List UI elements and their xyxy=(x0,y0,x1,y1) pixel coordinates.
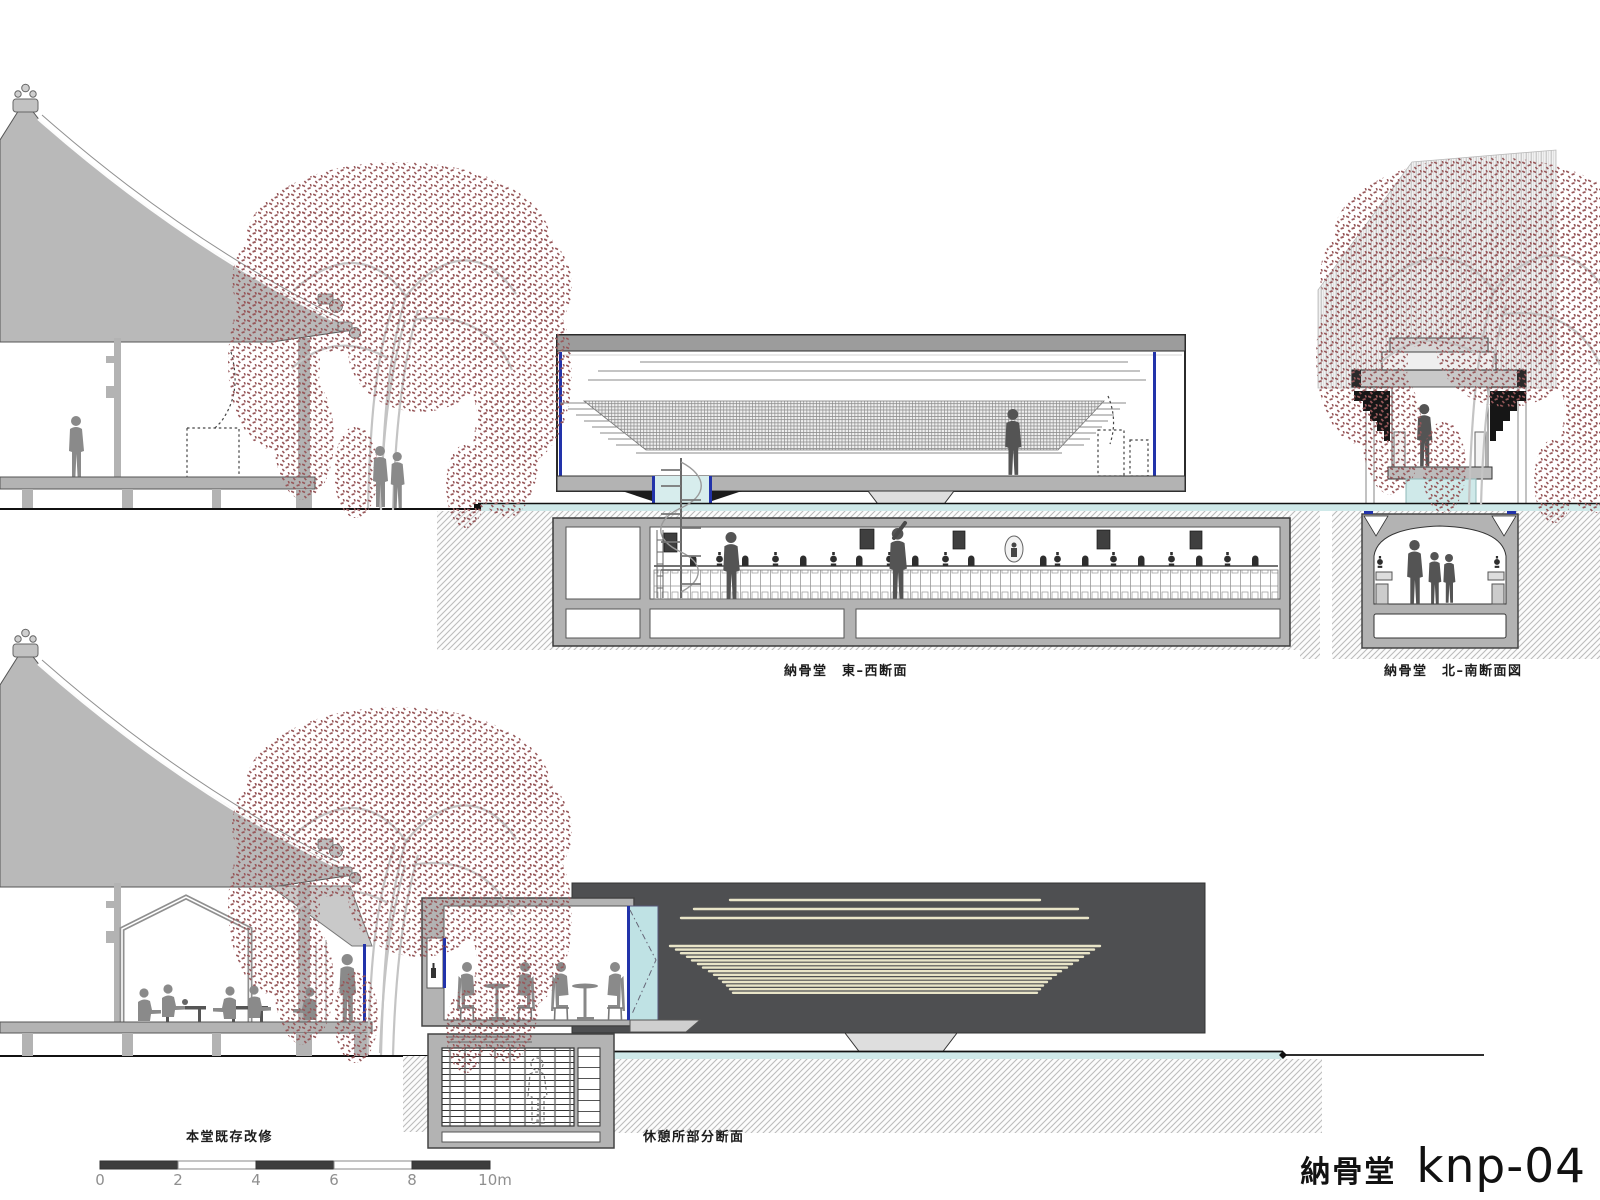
scale-tick-2: 2 xyxy=(173,1171,183,1189)
scale-tick-0: 0 xyxy=(95,1171,105,1189)
ground-line-bottom xyxy=(0,1051,1484,1133)
columbarium-counter xyxy=(654,570,1278,599)
sheet-number: knp-04 xyxy=(1416,1139,1586,1194)
caption-rest-area: 休憩所部分断面 xyxy=(643,1126,745,1145)
scale-tick-10m: 10m xyxy=(478,1171,512,1189)
scale-tick-8: 8 xyxy=(407,1171,417,1189)
project-name: 納骨堂 xyxy=(1300,1147,1396,1191)
vaulted-room xyxy=(1374,526,1506,604)
niche-wall xyxy=(584,401,1104,450)
ossuary-east-west-section xyxy=(557,335,1185,512)
underground-ns xyxy=(1300,511,1600,659)
earth-hatch xyxy=(614,1059,1322,1133)
drawing-sheet: 納骨堂 東–西断面 納骨堂 北–南断面図 本堂既存改修 休憩所部分断面 0 2 … xyxy=(0,0,1600,1200)
glass-partition xyxy=(628,906,658,1020)
tree-3 xyxy=(228,707,572,1073)
caption-east-west: 納骨堂 東–西断面 xyxy=(784,660,908,679)
ladder xyxy=(657,530,663,598)
scale-tick-4: 4 xyxy=(251,1171,261,1189)
architectural-drawing xyxy=(0,0,1600,1200)
caption-north-south: 納骨堂 北–南断面図 xyxy=(1384,660,1523,679)
ground-water-line-top xyxy=(0,504,1600,512)
title-block: 納骨堂 knp-04 xyxy=(1300,1139,1586,1194)
scale-tick-6: 6 xyxy=(329,1171,339,1189)
person-silhouette xyxy=(138,988,161,1021)
tree-2 xyxy=(1316,157,1600,523)
person-silhouette xyxy=(162,984,185,1017)
caption-main-hall: 本堂既存改修 xyxy=(186,1126,273,1145)
person-silhouette xyxy=(213,986,236,1019)
person-silhouette xyxy=(69,416,84,477)
tree-1 xyxy=(228,162,572,528)
scale-bar xyxy=(100,1161,490,1169)
storage-column xyxy=(578,1048,600,1126)
